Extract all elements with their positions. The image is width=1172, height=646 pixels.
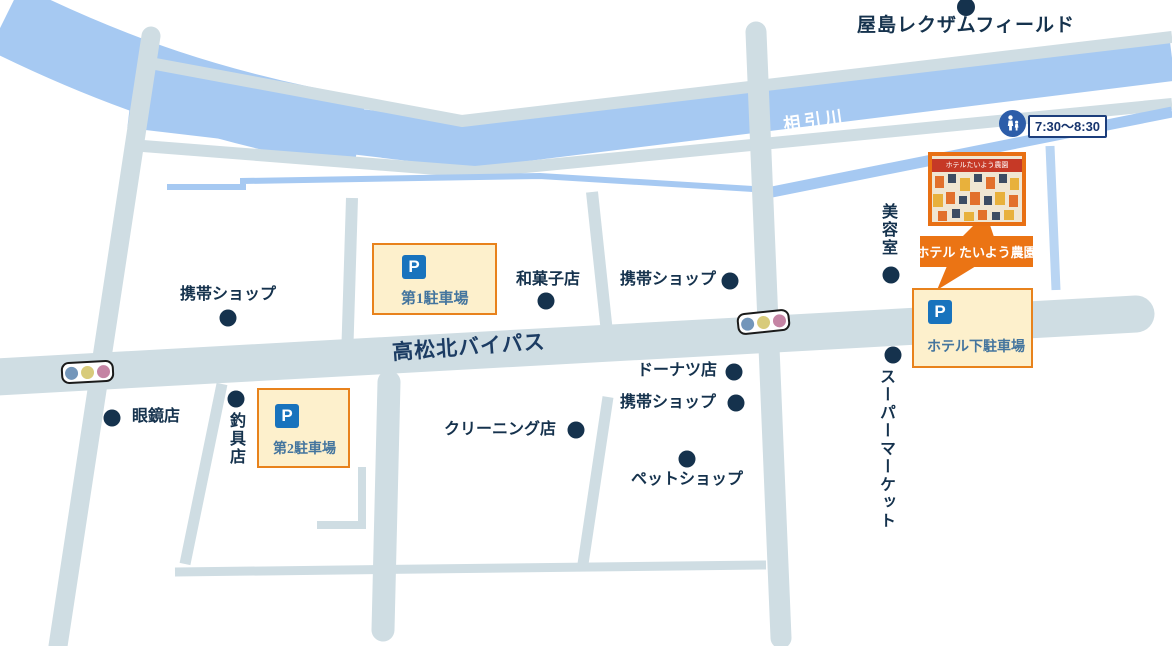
road-west-diagonal [58,36,151,646]
street-hotel-east [1050,146,1056,290]
label-glasses: 眼鏡店 [132,408,180,426]
hotel-photo-sign: ホテルたいよう農園 [932,159,1022,172]
label-supermarket: スーパーマーケット [877,368,893,530]
street-parking1-west [347,198,352,360]
hotel-callout: ホテル たいよう農園 [920,236,1033,267]
traffic-light-pink-dot [97,364,111,378]
marker-mobile-shop-south [728,395,745,412]
hotel-photo-mosaic [932,172,1022,222]
parking-icon: P [928,300,952,324]
street-parking2-l [317,467,362,525]
marker-donut [726,364,743,381]
marker-wagashi [538,293,555,310]
callout-arrow-parking [937,266,976,290]
label-wagashi: 和菓子店 [516,271,580,289]
label-donut: ドーナツ店 [637,362,717,380]
street-cleaning [583,397,608,564]
marker-cleaning [568,422,585,439]
traffic-light-pink-dot [772,313,786,327]
hotel-photo: ホテルたいよう農園 [928,152,1026,226]
label-pet-shop: ペットショップ [631,471,743,489]
hotel-parking-box: P ホテル下駐車場 [912,288,1033,368]
marker-mobile-shop-west [220,310,237,327]
parking-lot-1-box: P 第1駐車場 [372,243,497,315]
marker-mobile-shop-mid [722,273,739,290]
street-mid-wide [383,382,389,630]
parking-lot-2-box: P 第2駐車場 [257,388,350,468]
parking-lot-1-label: 第1駐車場 [401,287,469,308]
traffic-light-yellow-dot [756,315,770,329]
label-cleaning: クリーニング店 [444,421,556,439]
school-zone-time-badge: 7:30〜8:30 [1028,115,1107,138]
hotel-parking-label: ホテル下駐車場 [927,336,1025,356]
marker-glasses [104,410,121,427]
street-bottom [175,565,766,572]
marker-pet-shop [679,451,696,468]
access-map: 相引川 高松北バイパス 屋島レクザムフィールド 携帯ショップ 和菓子店 携帯ショ… [0,0,1172,646]
parking-icon: P [275,404,299,428]
pedestrian-figures [1003,114,1022,133]
parking-lot-2-label: 第2駐車場 [273,438,336,458]
canal-left [167,176,770,190]
parking-icon: P [402,255,426,279]
street-mid-upper [592,192,608,342]
marker-fishing [228,391,245,408]
traffic-light-blue-dot [740,317,754,331]
label-beauty-salon: 美容室 [879,203,895,257]
label-mobile-shop-mid: 携帯ショップ [620,271,716,289]
marker-beauty-salon [883,267,900,284]
pedestrian-zone-sign-icon [999,110,1026,137]
label-mobile-shop-west: 携帯ショップ [180,286,276,304]
label-mobile-shop-south: 携帯ショップ [620,394,716,412]
traffic-light-blue-dot [65,366,79,380]
traffic-light-west [60,360,114,385]
marker-supermarket [885,347,902,364]
label-rexxam-field: 屋島レクザムフィールド [857,16,1075,37]
street-left-lower [185,384,222,564]
label-fishing: 釣具店 [227,412,243,466]
traffic-light-yellow-dot [81,365,95,379]
marker-rexxam-field [957,0,975,16]
